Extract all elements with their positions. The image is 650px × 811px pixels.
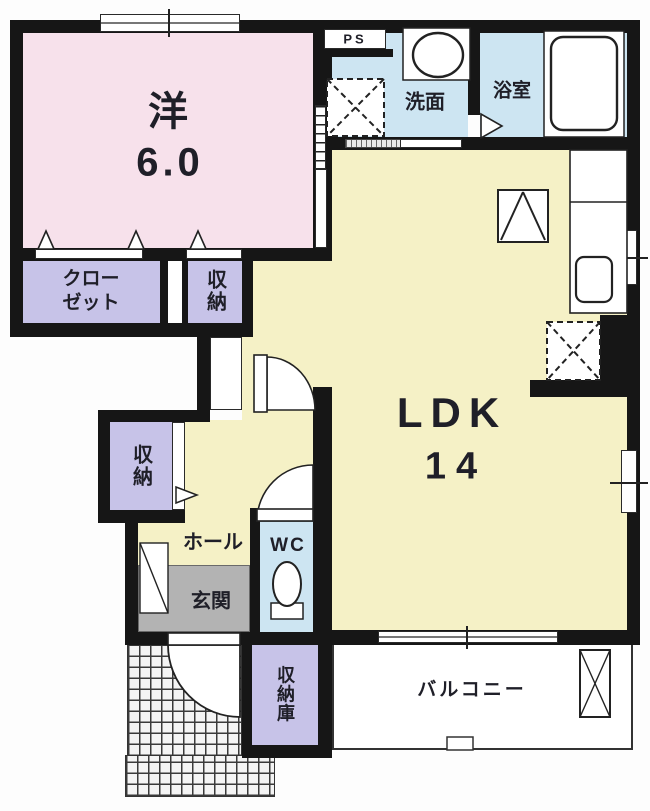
bathtub (544, 31, 624, 137)
wash-basin (403, 28, 470, 80)
range-symbol (498, 190, 548, 242)
refrigerator-space (547, 322, 600, 380)
door-hall-ldk (254, 355, 315, 412)
shoe-cabinet (140, 543, 168, 613)
door-entrance (168, 633, 240, 717)
bathroom-label: 浴室 (493, 76, 531, 103)
pipe-space-label: PS (343, 32, 366, 47)
entrance-label: 玄関 (191, 585, 231, 614)
washing-machine-space (327, 79, 384, 136)
balcony-label: バルコニー (417, 675, 527, 702)
wc-label: WC (270, 535, 306, 557)
western-room-size: 6.0 (136, 141, 204, 186)
closet-label: クロー ゼット (62, 267, 119, 315)
closet-door-markers (38, 231, 206, 249)
storage-room-label: 収納庫 (272, 666, 298, 723)
toilet (271, 562, 303, 619)
storage-upper-label: 収納 (201, 269, 230, 313)
storage-hall-label: 収納 (127, 444, 156, 488)
balcony-notch (447, 737, 473, 750)
kitchen-counter (570, 150, 627, 313)
floor-plan: 洋 6.0 LDK 14 クロー ゼット 収納 収納 洗面 浴室 PS ホール … (0, 0, 650, 811)
washroom-label: 洗面 (405, 86, 445, 115)
ldk-size: 14 (425, 446, 487, 489)
door-wc (257, 465, 313, 521)
fixtures-layer (0, 0, 650, 811)
storage-hall-door-marker (176, 487, 197, 503)
ldk-label: LDK (397, 389, 507, 437)
western-room-label: 洋 (148, 79, 188, 137)
ac-unit (580, 650, 610, 717)
bathroom-door-marker (481, 114, 502, 138)
hall-label: ホール (183, 526, 243, 555)
